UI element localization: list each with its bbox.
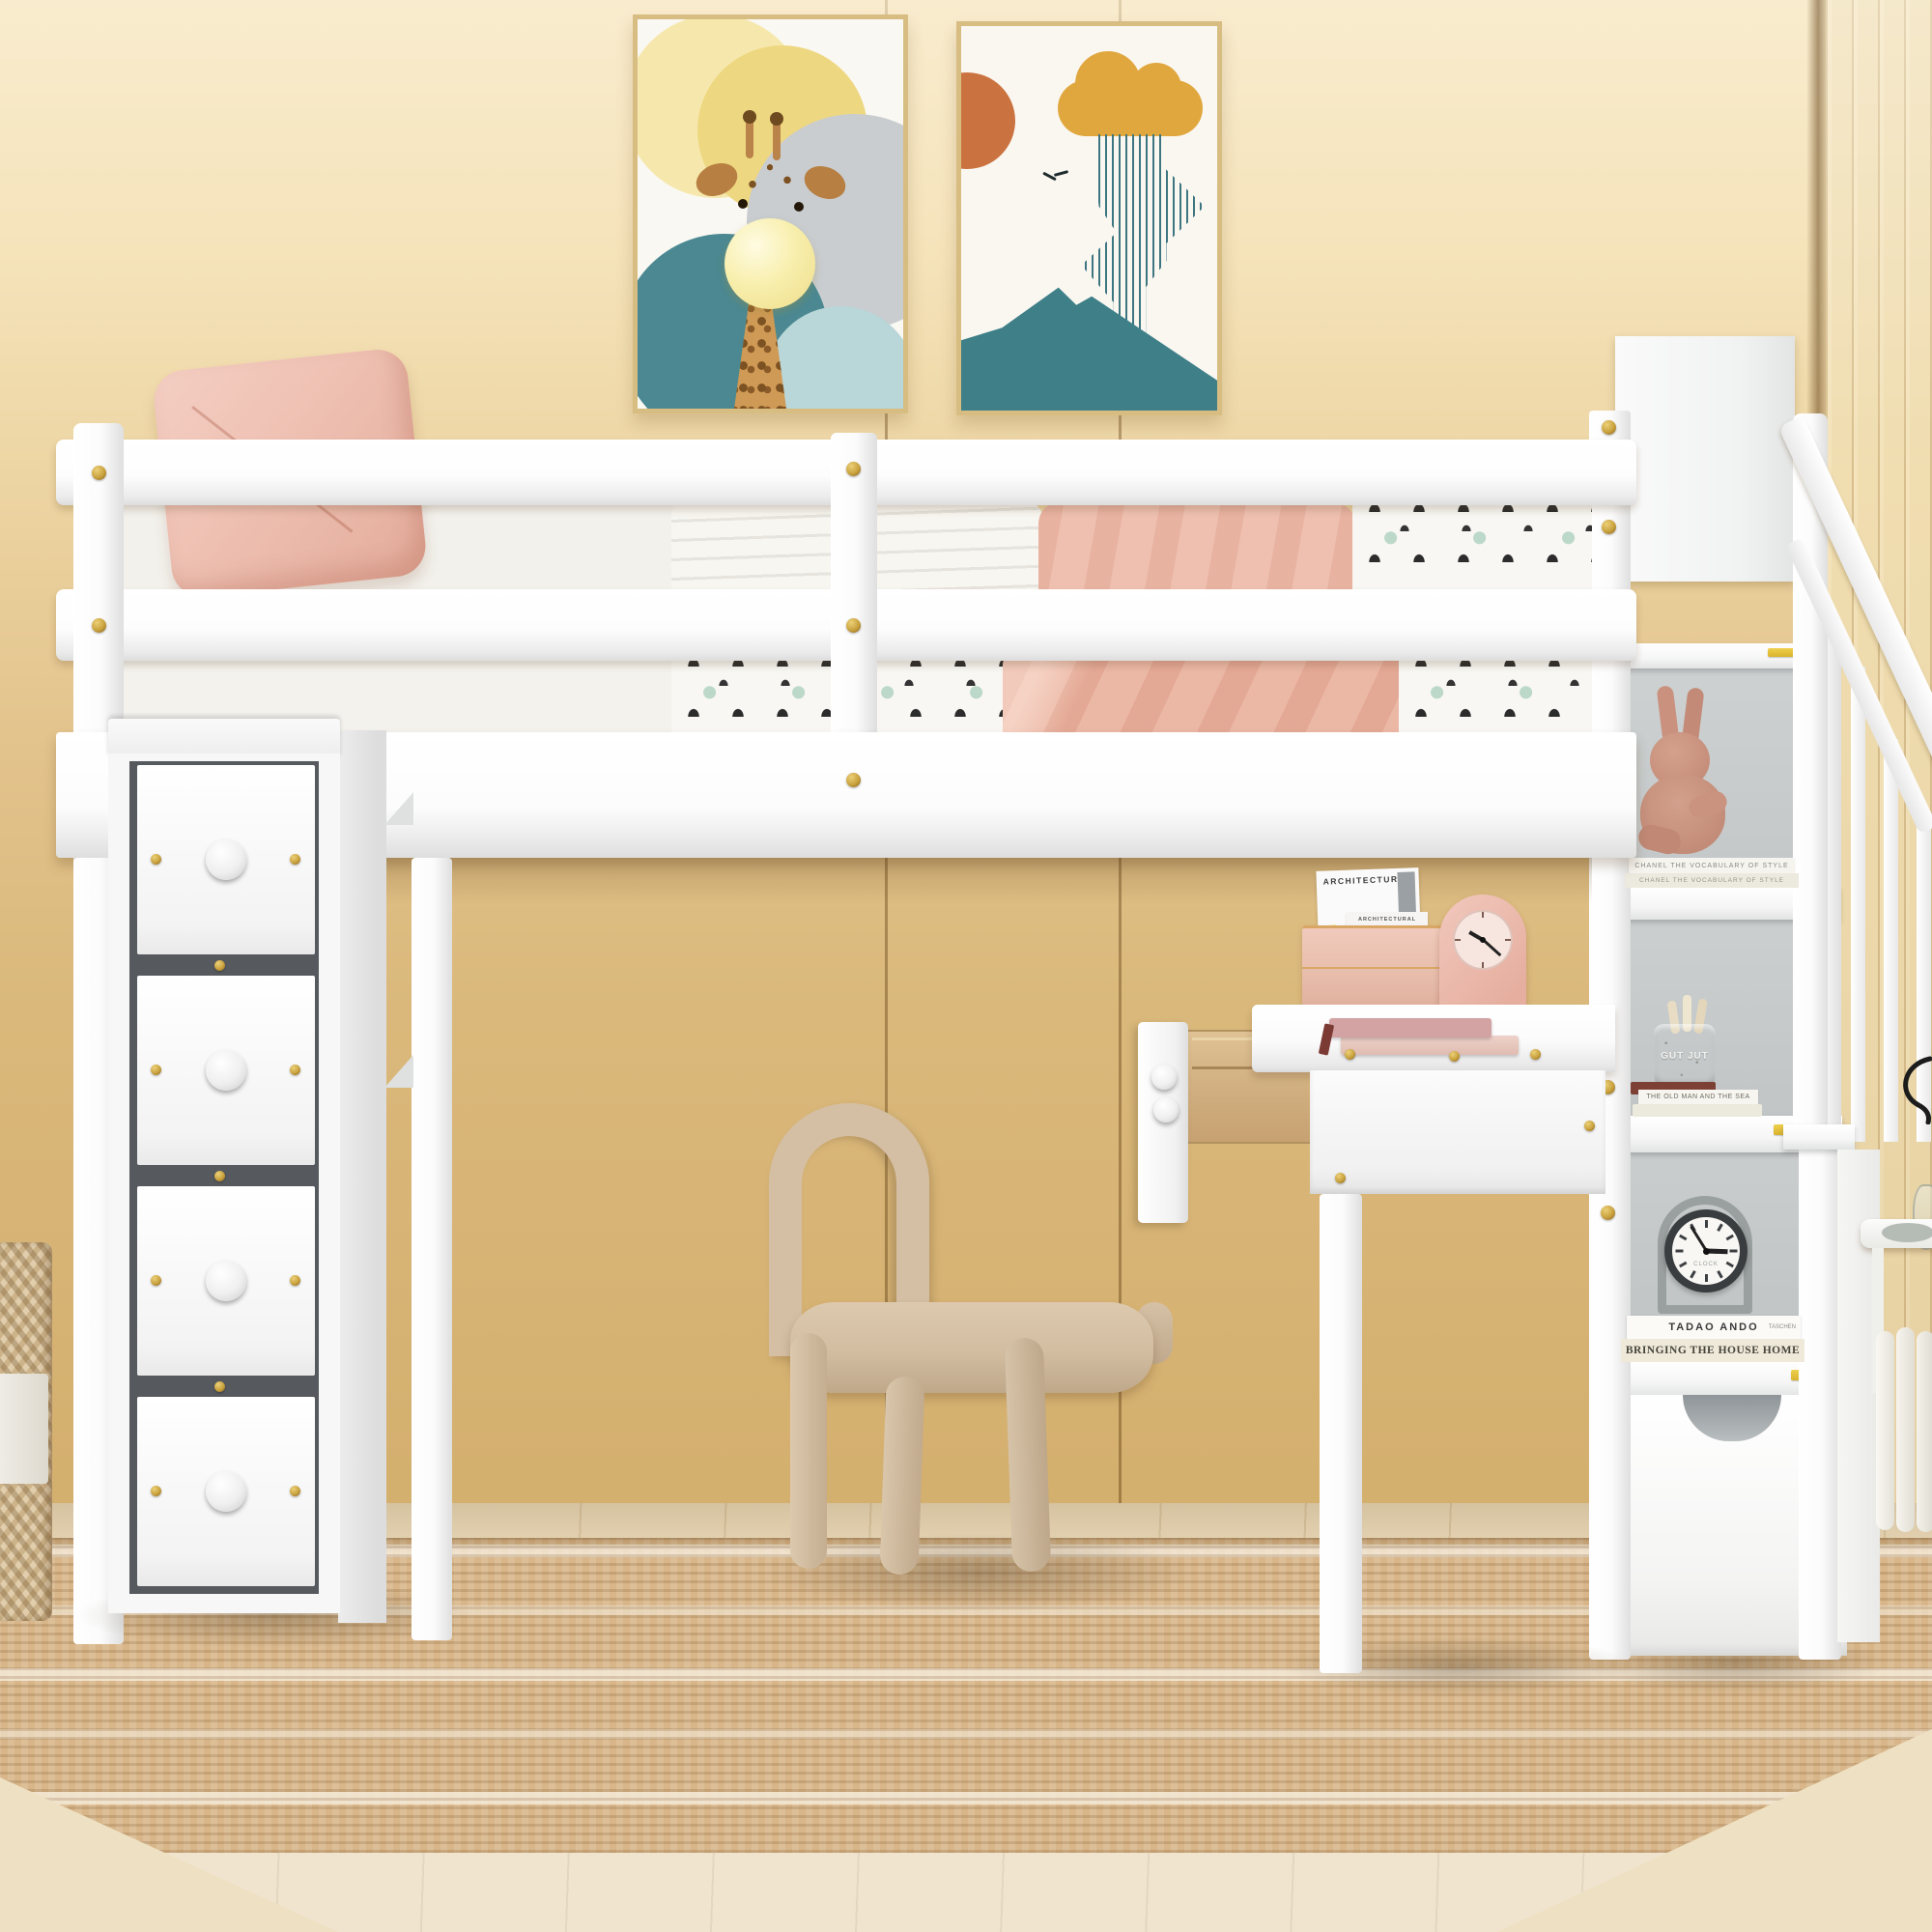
bunny-plush — [1636, 682, 1739, 862]
pencil-jar-label: GUT JUT — [1661, 1051, 1709, 1062]
screw — [151, 1065, 161, 1075]
screw — [290, 1486, 300, 1496]
shelf-clock-word: CLOCK — [1672, 1262, 1740, 1267]
drawer-knob[interactable] — [206, 1050, 246, 1091]
tadao-book-title: TADAO ANDO — [1668, 1321, 1758, 1333]
tower-top-surface — [108, 719, 340, 757]
chair-leg-front — [879, 1376, 924, 1575]
clock-tick — [1482, 962, 1484, 968]
drawer-tower — [108, 719, 340, 1613]
clock-tick — [1705, 1220, 1708, 1228]
jar-book-cream — [1633, 1104, 1762, 1117]
pink-blanket-lower — [1003, 655, 1403, 738]
bunny-book-top: CHANEL THE VOCABULARY OF STYLE — [1629, 858, 1795, 873]
drawer-knob[interactable] — [206, 839, 246, 880]
screw — [1530, 1049, 1541, 1060]
basket-cloth-band — [0, 1374, 48, 1484]
stair-upper-side-panel — [1615, 336, 1795, 582]
shelf-clock-center — [1703, 1248, 1710, 1255]
screw — [1602, 520, 1616, 534]
screw — [290, 1275, 300, 1286]
tower-drawer-3[interactable] — [137, 1186, 315, 1376]
tadao-book: TADAO ANDO TASCHEN — [1627, 1316, 1801, 1339]
radiator-tube — [1917, 1331, 1932, 1532]
desk-front-leg[interactable] — [1320, 1194, 1362, 1673]
desk-drawer-knob[interactable] — [1151, 1065, 1177, 1090]
radiator-tube — [1896, 1327, 1915, 1532]
shelf-clock: CLOCK — [1664, 1209, 1747, 1293]
giraffe-eye-right — [794, 202, 804, 212]
tower-drawer-1[interactable] — [137, 765, 315, 954]
poster-bird-wing-right — [1054, 170, 1068, 177]
stone-tray — [1882, 1223, 1932, 1242]
clock-tick — [1675, 1250, 1683, 1253]
magazine-small-title: ARCHITECTURAL — [1347, 917, 1428, 923]
tower-drawer-2[interactable] — [137, 976, 315, 1165]
poster-sun — [956, 72, 1015, 169]
bunny-book-bottom: CHANEL THE VOCABULARY OF STYLE — [1625, 873, 1799, 888]
chair-leg-left — [790, 1333, 827, 1569]
screw — [1335, 1173, 1346, 1183]
desk-drawer-knob[interactable] — [1153, 1097, 1179, 1122]
bunny-book-bottom-title: CHANEL THE VOCABULARY OF STYLE — [1639, 877, 1784, 884]
giraffe-eye-left — [738, 199, 748, 209]
magazine-rack-gold-trim — [1302, 967, 1449, 969]
tower-side-panel — [338, 730, 386, 1623]
bringing-book-title: BRINGING THE HOUSE HOME — [1626, 1345, 1800, 1356]
giraffe-poster — [633, 14, 908, 413]
room-scene: CHANEL THE VOCABULARY OF STYLE CHANEL TH… — [0, 0, 1932, 1932]
screw — [151, 1486, 161, 1496]
screw — [92, 466, 106, 480]
pink-blanket-upper — [1038, 502, 1357, 597]
pencil-jar: GUT JUT — [1654, 1024, 1716, 1088]
bed-front-leg — [412, 858, 452, 1640]
screw — [290, 854, 300, 865]
old-man-book: THE OLD MAN AND THE SEA — [1638, 1090, 1758, 1104]
chair-leg-right — [1005, 1337, 1051, 1572]
screw — [151, 1275, 161, 1286]
screw — [92, 618, 106, 633]
screw — [214, 1381, 225, 1392]
bringing-book: BRINGING THE HOUSE HOME — [1621, 1339, 1804, 1362]
screw — [1345, 1049, 1355, 1060]
stair-step-tread[interactable] — [1783, 1124, 1855, 1150]
screw — [846, 618, 861, 633]
bunny-book-top-title: CHANEL THE VOCABULARY OF STYLE — [1634, 863, 1788, 869]
screw — [214, 1171, 225, 1181]
clock-tick — [1482, 912, 1484, 918]
screw — [214, 960, 225, 971]
desk-apron — [1310, 1070, 1605, 1194]
desk-book-bottom — [1341, 1036, 1519, 1055]
giraffe-bubble — [724, 218, 815, 309]
screw — [846, 773, 861, 787]
clock-tick — [1679, 1235, 1687, 1241]
desk-drawer-front[interactable] — [1138, 1022, 1188, 1223]
screw — [151, 854, 161, 865]
screw — [1601, 1206, 1615, 1220]
clock-tick — [1505, 939, 1511, 941]
giraffe-ossicone-knob-right — [770, 112, 783, 126]
clock-tick — [1717, 1270, 1723, 1278]
stair-baluster-1 — [1851, 667, 1865, 1142]
poster-cloud-bump-right — [1131, 63, 1181, 113]
screw — [290, 1065, 300, 1075]
tadao-book-publisher: TASCHEN — [1769, 1324, 1796, 1330]
screw — [1602, 420, 1616, 435]
screw — [846, 462, 861, 476]
drawer-knob[interactable] — [206, 1261, 246, 1301]
screw — [1584, 1121, 1595, 1131]
chair-seat[interactable] — [790, 1302, 1153, 1393]
clock-tick — [1725, 1235, 1733, 1241]
radiator-tube — [1876, 1331, 1894, 1530]
tower-drawer-4[interactable] — [137, 1397, 315, 1586]
clock-tick — [1717, 1224, 1723, 1232]
drawer-knob[interactable] — [206, 1471, 246, 1512]
poster-mountain — [961, 285, 1217, 411]
wall-hook-decor — [1889, 1055, 1932, 1124]
printed-blanket-lower-right — [1399, 655, 1592, 738]
clock-tick — [1729, 1250, 1737, 1253]
desk-clock-dial — [1453, 910, 1513, 970]
clock-tick — [1455, 939, 1461, 941]
mountain-poster — [956, 21, 1222, 415]
clock-tick — [1690, 1270, 1696, 1278]
desk-clock-center — [1480, 937, 1486, 943]
clock-tick — [1705, 1274, 1708, 1282]
screw — [1449, 1051, 1460, 1062]
printed-blanket-upper — [1352, 500, 1592, 597]
giraffe-ossicone-knob-left — [743, 110, 756, 124]
desk-book-top — [1329, 1018, 1492, 1037]
shelf-sticker-1 — [1768, 648, 1795, 657]
puffy-radiator — [1876, 1327, 1932, 1534]
old-man-book-title: THE OLD MAN AND THE SEA — [1646, 1094, 1749, 1100]
